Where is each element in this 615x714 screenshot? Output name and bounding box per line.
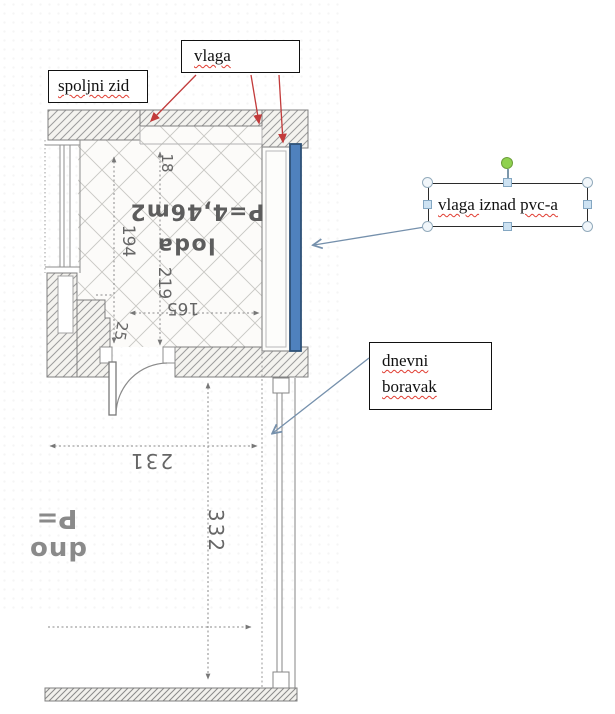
moisture-highlight-bar[interactable] xyxy=(290,144,301,351)
callout-vlaga-label: vlaga xyxy=(194,46,231,65)
resize-handle-ne[interactable] xyxy=(582,177,593,188)
resize-handle-sw[interactable] xyxy=(422,221,433,232)
top-wall-left xyxy=(48,110,140,140)
top-wall-right xyxy=(262,110,308,148)
resize-handle-s[interactable] xyxy=(503,222,512,231)
selected-word-vlaga: vlaga xyxy=(438,195,479,214)
left-wall-step xyxy=(77,300,110,377)
dim-label-165: 165 xyxy=(167,298,199,318)
bottom-edge-wall xyxy=(45,688,297,701)
room-area-label: P=4,46m2 xyxy=(129,199,264,224)
door-jamb-left xyxy=(100,347,112,363)
resize-handle-e[interactable] xyxy=(583,200,592,209)
left-window xyxy=(45,140,80,273)
rotate-handle[interactable] xyxy=(501,157,513,169)
partial-room-label-top: P= xyxy=(37,503,78,533)
resize-handle-w[interactable] xyxy=(423,200,432,209)
selected-word-pvca: pvc-a xyxy=(520,195,558,214)
partial-room-label-bottom: dno xyxy=(29,535,87,565)
callout-dnevni-line2: boravak xyxy=(382,377,437,396)
door xyxy=(100,347,175,415)
dim-label-219: 219 xyxy=(154,267,174,299)
room-name-label: loda xyxy=(156,233,215,258)
callout-spoljni-zid-label: spoljni zid xyxy=(58,76,129,95)
door-jamb-right xyxy=(163,347,175,363)
top-wall-niche xyxy=(140,110,262,126)
callout-dnevni-line1: dnevni xyxy=(382,351,428,370)
callout-vlaga[interactable]: vlaga xyxy=(181,40,300,73)
callout-spoljni-zid[interactable]: spoljni zid xyxy=(48,70,148,103)
dim-label-194: 194 xyxy=(118,225,138,257)
dim-label-332: 332 xyxy=(204,509,228,553)
left-wall-opening xyxy=(58,276,73,333)
dim-label-231: 231 xyxy=(129,449,173,473)
niche-floor xyxy=(140,126,262,142)
floorplan-image[interactable]: P=4,46m2 loda 18 194 219 165 25 231 332 … xyxy=(0,0,615,714)
door-swing-arc xyxy=(116,363,167,414)
callout-dnevni-boravak[interactable]: dnevni boravak xyxy=(369,342,492,410)
selected-word-iznad: iznad xyxy=(479,195,520,214)
dim-label-18: 18 xyxy=(158,153,176,172)
resize-handle-n[interactable] xyxy=(503,178,512,187)
resize-handle-nw[interactable] xyxy=(422,177,433,188)
document-canvas: P=4,46m2 loda 18 194 219 165 25 231 332 … xyxy=(0,0,615,714)
callout-vlaga-iznad-pvca-selected[interactable]: vlaga iznad pvc-a xyxy=(428,183,588,227)
glass-wall xyxy=(262,352,295,688)
resize-handle-se[interactable] xyxy=(582,221,593,232)
dim-label-25: 25 xyxy=(110,320,131,342)
door-leaf xyxy=(109,362,116,415)
